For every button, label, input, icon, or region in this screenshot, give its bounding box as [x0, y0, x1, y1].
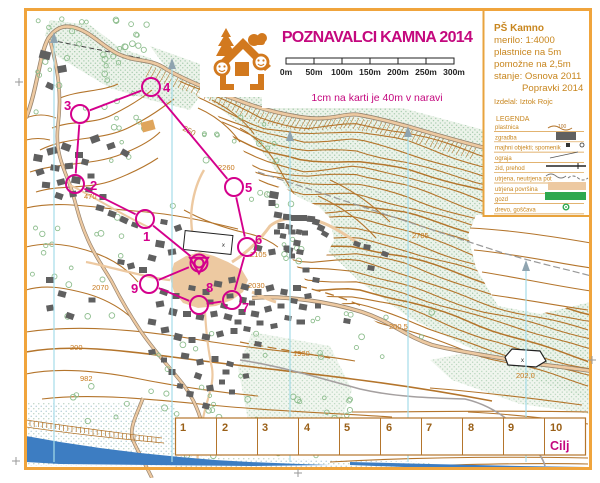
svg-text:merilo: 1:4000: merilo: 1:4000 — [494, 35, 555, 46]
svg-text:2030: 2030 — [248, 281, 265, 290]
svg-text:x: x — [222, 242, 226, 248]
svg-text:300m: 300m — [443, 67, 465, 77]
svg-text:3: 3 — [262, 422, 268, 434]
svg-text:5: 5 — [245, 180, 252, 195]
svg-text:stanje: Osnova 2011: stanje: Osnova 2011 — [494, 71, 581, 82]
svg-text:982: 982 — [80, 374, 93, 383]
svg-text:10: 10 — [550, 422, 562, 434]
svg-text:1930: 1930 — [293, 349, 310, 358]
svg-text:2: 2 — [222, 422, 228, 434]
svg-text:2: 2 — [90, 178, 97, 193]
svg-text:8: 8 — [206, 280, 213, 295]
svg-text:1: 1 — [143, 229, 150, 244]
svg-text:2070: 2070 — [92, 283, 109, 292]
svg-text:8: 8 — [468, 422, 474, 434]
svg-text:6: 6 — [255, 232, 262, 247]
svg-text:pomožne na 2,5m: pomožne na 2,5m — [494, 59, 571, 70]
svg-text:plastnice na 5m: plastnice na 5m — [494, 47, 561, 58]
svg-text:5: 5 — [344, 422, 350, 434]
svg-text:200: 200 — [70, 343, 83, 352]
svg-text:ograja: ograja — [495, 156, 512, 162]
svg-text:202,0: 202,0 — [516, 371, 535, 380]
svg-text:4: 4 — [163, 80, 171, 95]
svg-text:Popravki 2014: Popravki 2014 — [522, 83, 584, 94]
svg-text:9: 9 — [508, 422, 514, 434]
svg-text:7: 7 — [242, 300, 249, 315]
svg-text:plastnica: plastnica — [495, 125, 519, 131]
svg-text:100m: 100m — [331, 67, 353, 77]
svg-text:200,5: 200,5 — [389, 322, 408, 331]
svg-text:zgradba: zgradba — [495, 135, 517, 141]
svg-text:0m: 0m — [280, 67, 293, 77]
svg-text:utrjena, neutrjena pot: utrjena, neutrjena pot — [495, 177, 552, 183]
svg-text:2785: 2785 — [412, 231, 429, 240]
svg-text:9: 9 — [131, 281, 138, 296]
svg-text:PŠ Kamno: PŠ Kamno — [494, 21, 544, 34]
svg-text:7: 7 — [426, 422, 432, 434]
svg-text:200m: 200m — [387, 67, 409, 77]
svg-text:4: 4 — [304, 422, 311, 434]
svg-text:utrjena površina: utrjena površina — [495, 187, 538, 193]
svg-text:150m: 150m — [359, 67, 381, 77]
svg-text:1: 1 — [180, 422, 186, 434]
svg-text:drevo, goščava: drevo, goščava — [495, 207, 536, 213]
svg-text:250m: 250m — [415, 67, 437, 77]
svg-text:1cm na karti je 40m v naravi: 1cm na karti je 40m v naravi — [311, 92, 442, 104]
svg-text:3: 3 — [64, 98, 71, 113]
svg-text:POZNAVALCI KAMNA 2014: POZNAVALCI KAMNA 2014 — [282, 29, 473, 46]
svg-text:x: x — [521, 358, 524, 364]
svg-text:majhni objekti; spomenik: majhni objekti; spomenik — [495, 146, 562, 152]
svg-text:6: 6 — [386, 422, 392, 434]
svg-text:50m: 50m — [305, 67, 322, 77]
svg-text:Cilj: Cilj — [550, 439, 569, 453]
svg-text:100: 100 — [558, 124, 567, 130]
svg-text:zid, prehod: zid, prehod — [495, 166, 525, 172]
svg-text:gozd: gozd — [495, 197, 508, 203]
svg-text:LEGENDA: LEGENDA — [496, 116, 530, 123]
svg-text:Izdelal: Iztok Rojc: Izdelal: Iztok Rojc — [494, 97, 553, 106]
